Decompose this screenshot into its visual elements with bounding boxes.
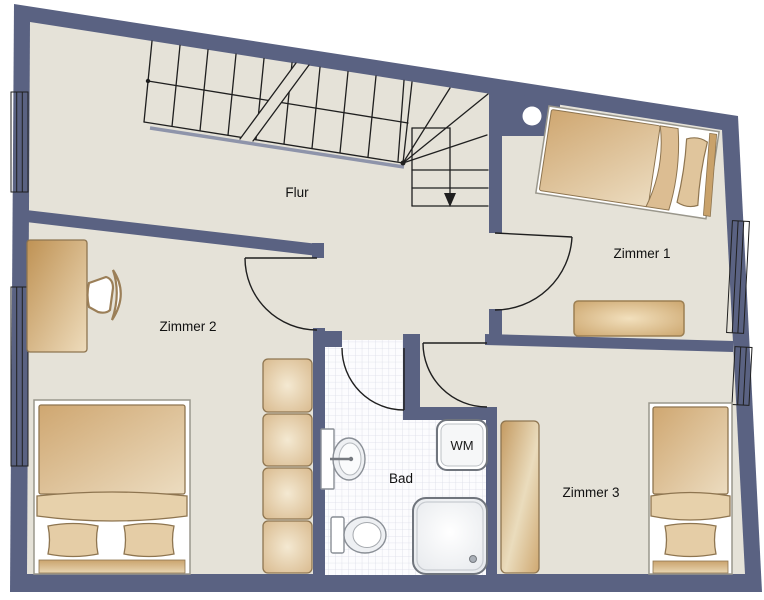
sideboard <box>574 301 684 336</box>
floorplan-canvas: WM Flur Zimmer 1 Zimmer 2 Zimmer 3 Bad <box>0 0 764 600</box>
floorplan-svg: WM Flur Zimmer 1 Zimmer 2 Zimmer 3 Bad <box>0 0 764 600</box>
wall-bath-north-stub <box>313 331 342 347</box>
desk <box>27 240 87 352</box>
pillow <box>124 524 174 557</box>
wall-bath-northeast <box>403 334 420 420</box>
wall-above-wm <box>420 407 486 420</box>
single-bed-zimmer3 <box>649 403 732 574</box>
shower <box>413 498 487 574</box>
double-bed <box>34 400 190 574</box>
label-room1: Zimmer 1 <box>614 246 671 261</box>
label-bathroom: Bad <box>389 471 413 486</box>
washing-machine-label: WM <box>450 438 473 453</box>
round-column <box>523 107 542 126</box>
wall-zimmer1-jamb <box>489 309 502 336</box>
toilet <box>331 517 386 553</box>
wardrobe <box>501 421 539 573</box>
pillow <box>48 524 98 557</box>
shelf-unit <box>263 359 312 573</box>
label-hallway: Flur <box>285 185 309 200</box>
label-room3: Zimmer 3 <box>563 485 620 500</box>
shower-drain <box>470 556 477 563</box>
label-room2: Zimmer 2 <box>160 319 217 334</box>
pillow <box>665 524 716 557</box>
washing-machine: WM <box>437 420 487 470</box>
